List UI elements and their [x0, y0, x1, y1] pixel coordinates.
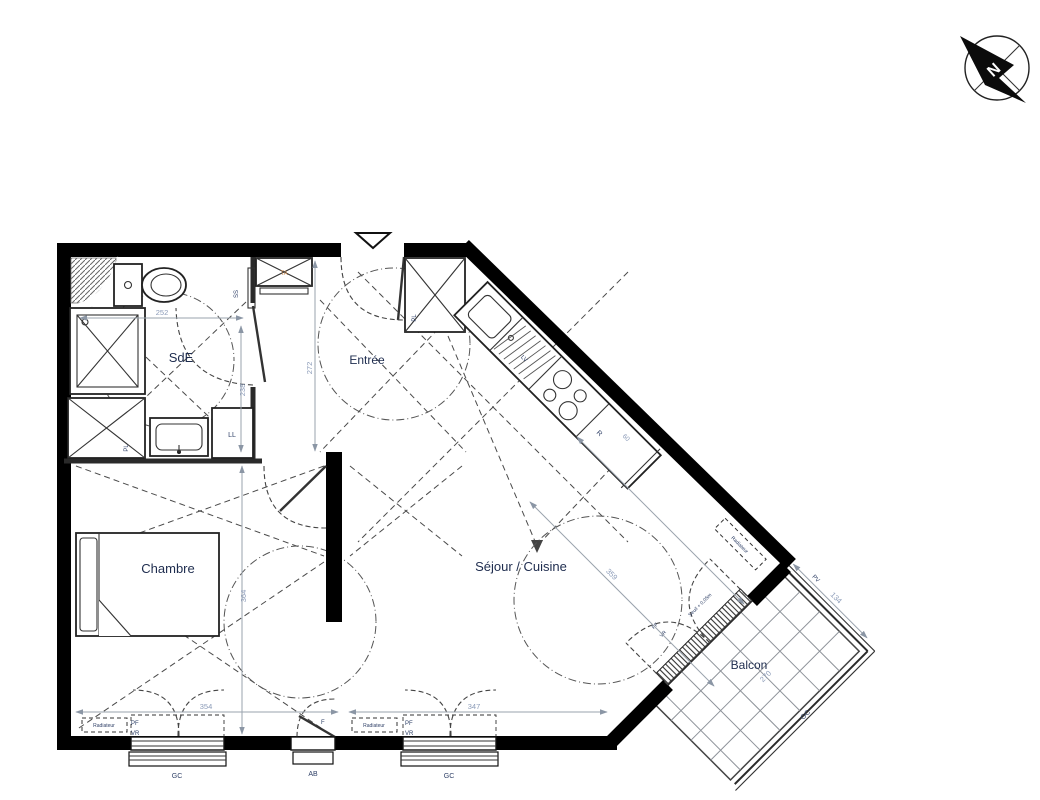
- bathroom-fixtures: [68, 256, 265, 458]
- bed: [76, 533, 219, 636]
- tech-box-label: TA: [280, 271, 287, 277]
- f-window-label: F: [321, 720, 325, 726]
- chambre-door-leaf: [280, 466, 326, 511]
- sde-door-leaf: [253, 306, 265, 382]
- kitchen: R 60 LV Radiateur: [451, 279, 768, 596]
- radiator-sejour-label: Radiateur: [363, 723, 385, 729]
- shower: [70, 308, 145, 394]
- chambre-window-pf: PF: [131, 721, 139, 727]
- dim-sejour-diagonal: 359: [604, 567, 619, 582]
- washer-label: LL: [228, 432, 236, 439]
- towel-rail-label: SS: [234, 290, 240, 298]
- f-window-ab: AB: [308, 771, 318, 778]
- closet-sde: [68, 398, 145, 458]
- floor-plan: PV 134 270 GC Balcon: [0, 0, 1040, 800]
- dim-balcon-width: 134: [829, 590, 844, 605]
- dim-chambre-height: 364: [239, 590, 248, 603]
- entrance-door-swing: [341, 257, 404, 320]
- sejour-window-vr: VR: [405, 731, 414, 737]
- entrance: [341, 233, 404, 320]
- radiator-chambre-label: Radiateur: [93, 723, 115, 729]
- balcony-rail-label: GC: [800, 709, 812, 721]
- room-label-entree: Entrée: [349, 353, 385, 367]
- room-label-sejour: Séjour / Cuisine: [475, 559, 567, 574]
- room-label-balcon: Balcon: [731, 658, 768, 672]
- closet-sde-label: PL: [124, 444, 130, 452]
- dim-chambre-width: 354: [200, 702, 213, 711]
- room-label-chambre: Chambre: [141, 561, 194, 576]
- radiator-ne-label: Radiateur: [729, 535, 749, 555]
- f-window: [291, 699, 335, 764]
- closet-entree-label: PL: [412, 314, 418, 322]
- layout-guides: [76, 268, 682, 730]
- bedroom: [76, 466, 326, 636]
- room-label-sde: SdE: [169, 350, 194, 365]
- toilet: [114, 264, 186, 306]
- chambre-window-vr: VR: [131, 731, 140, 737]
- sejour-window: [401, 690, 498, 766]
- north-compass: N: [960, 36, 1029, 103]
- dim-entree-height: 272: [305, 362, 314, 375]
- entrance-arrow: [356, 233, 390, 248]
- threshold-label: Seuil + 0,05m: [687, 592, 713, 618]
- chambre-window-gc: GC: [172, 773, 183, 780]
- dim-sejour-width: 347: [468, 702, 481, 711]
- sejour-window-pf: PF: [405, 721, 413, 727]
- sejour-window-gc: GC: [444, 773, 455, 780]
- structural-column: [326, 452, 342, 622]
- dim-sde-width: 252: [156, 308, 169, 317]
- washbasin: [150, 418, 208, 456]
- entrance-door-leaf: [398, 257, 404, 320]
- balcony-door-vr: VR: [659, 629, 668, 638]
- dim-sde-height: 238: [238, 384, 247, 397]
